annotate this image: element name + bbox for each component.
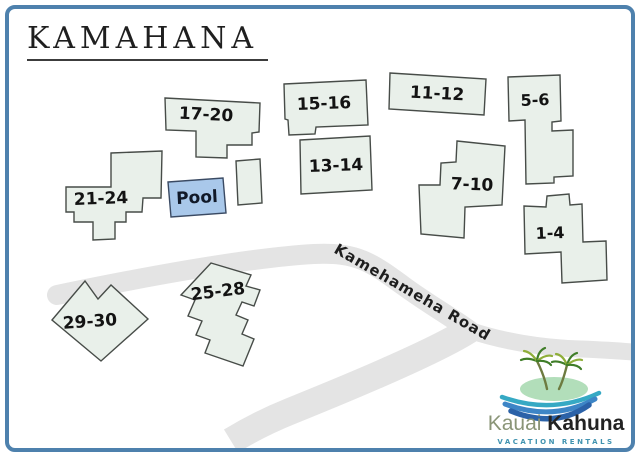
- building-label-7-10: 7-10: [450, 174, 493, 195]
- site-map-page: KAMAHANA 17-20 15-16 13-14 11-12 5-6 7-1…: [0, 0, 640, 457]
- brand-name: Kauai Kahuna: [471, 412, 635, 436]
- brand-tagline: Vacation Rentals: [471, 438, 635, 446]
- building-label-13-14: 13-14: [308, 155, 363, 177]
- logo: Kauai Kahuna Vacation Rentals: [471, 345, 635, 446]
- building-label-11-12: 11-12: [409, 83, 464, 106]
- building-label-17-20: 17-20: [178, 104, 233, 127]
- building-label-5-6: 5-6: [520, 90, 550, 110]
- brand-name-primary: Kauai: [488, 412, 542, 435]
- map-frame: KAMAHANA 17-20 15-16 13-14 11-12 5-6 7-1…: [5, 5, 635, 452]
- logo-spacer: [471, 345, 635, 412]
- pool-label: Pool: [176, 187, 219, 209]
- building-label-21-24: 21-24: [73, 188, 128, 210]
- building-label-29-30: 29-30: [62, 310, 118, 334]
- building-label-1-4: 1-4: [535, 223, 565, 243]
- road-branch-south: [231, 330, 469, 441]
- brand-name-secondary: Kahuna: [547, 412, 624, 435]
- building-label-15-16: 15-16: [296, 93, 351, 115]
- small-building-shape: [236, 159, 262, 205]
- page-title: KAMAHANA: [27, 21, 268, 61]
